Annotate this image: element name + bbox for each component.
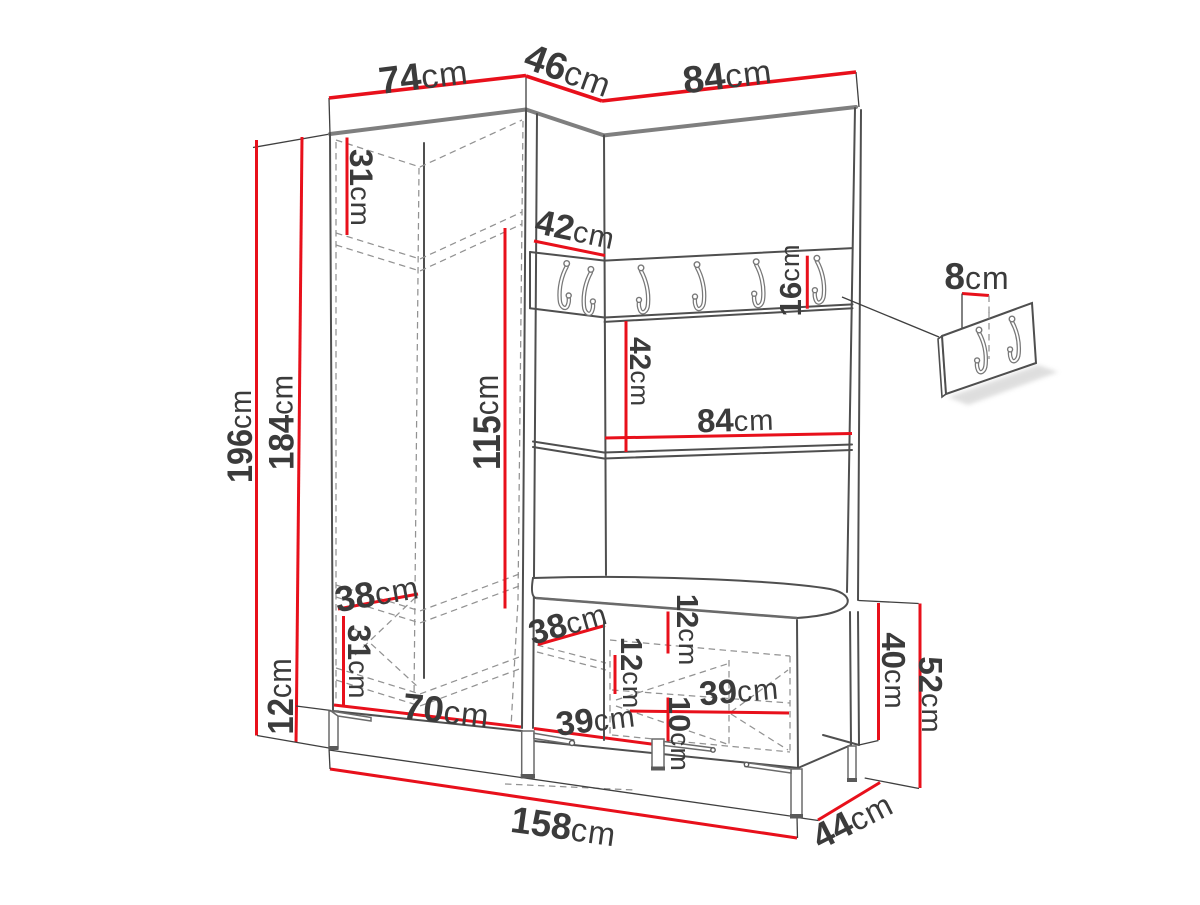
svg-text:10cm: 10cm	[663, 696, 698, 772]
svg-text:42cm: 42cm	[624, 337, 657, 407]
svg-text:184cm: 184cm	[262, 374, 301, 470]
svg-text:40cm: 40cm	[876, 632, 913, 709]
svg-text:12cm: 12cm	[615, 637, 650, 709]
svg-text:12cm: 12cm	[671, 594, 706, 666]
svg-text:8cm: 8cm	[944, 256, 1009, 297]
svg-text:16cm: 16cm	[773, 244, 808, 317]
svg-text:115cm: 115cm	[466, 374, 509, 470]
svg-text:196cm: 196cm	[221, 389, 260, 483]
svg-text:12cm: 12cm	[260, 658, 301, 735]
svg-text:31cm: 31cm	[341, 625, 377, 700]
svg-text:31cm: 31cm	[343, 149, 379, 227]
svg-text:52cm: 52cm	[913, 656, 950, 733]
svg-text:84cm: 84cm	[696, 400, 775, 440]
